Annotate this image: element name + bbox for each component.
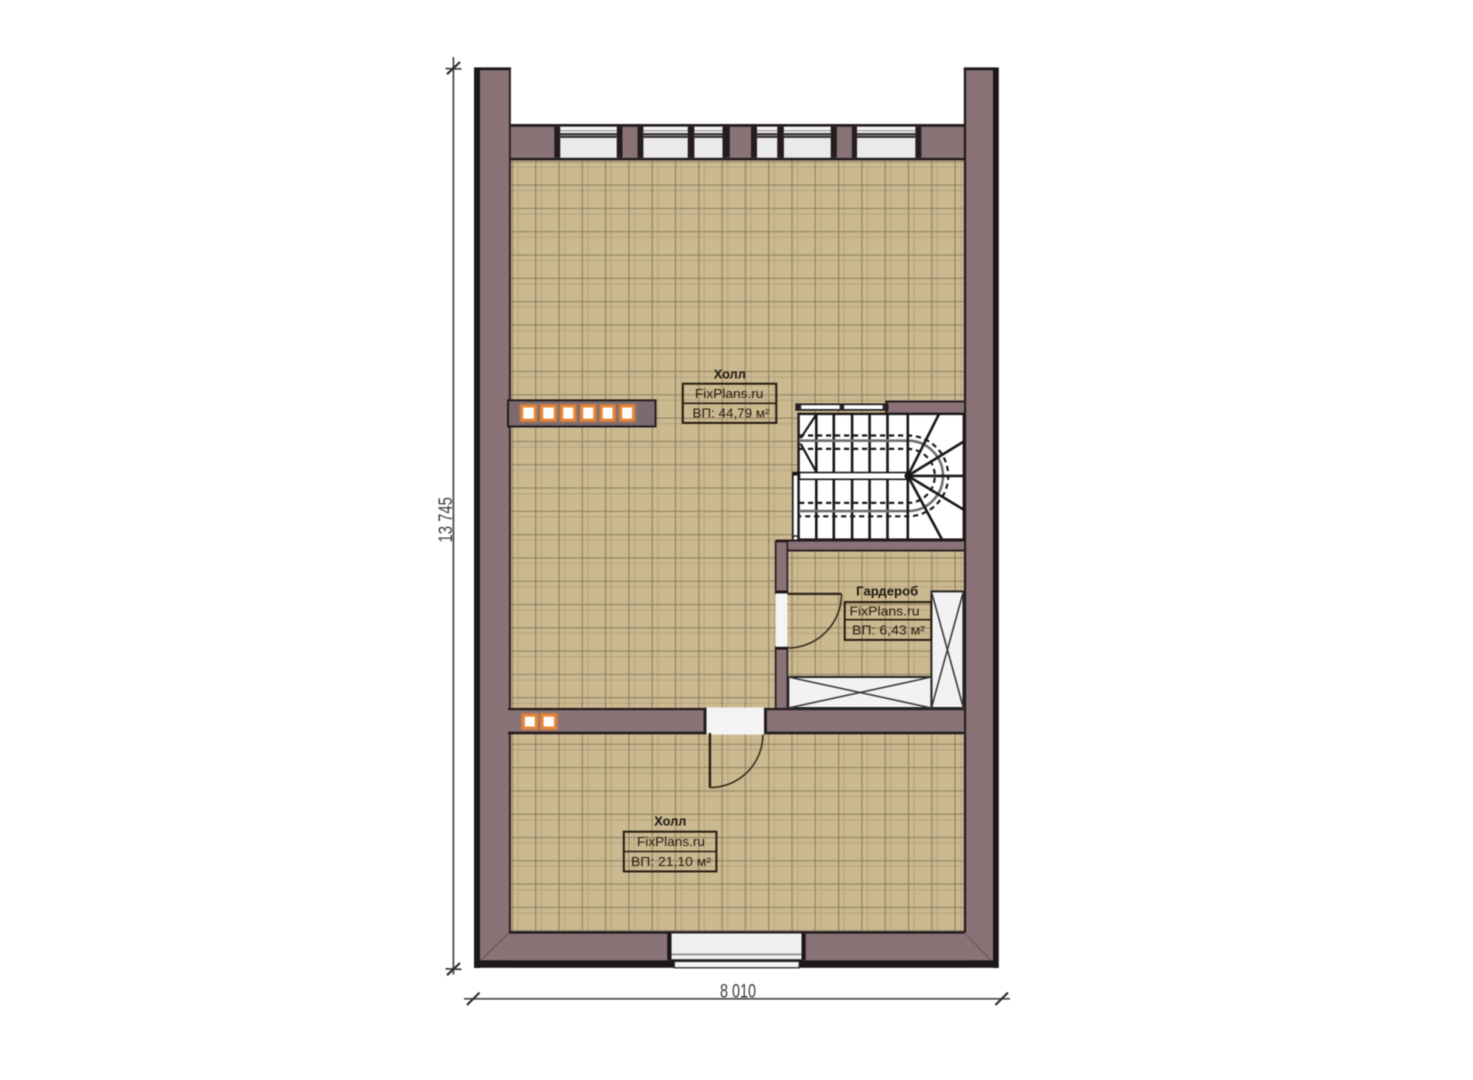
svg-text:ВП: 6,43 м²: ВП: 6,43 м² [852,623,926,638]
svg-text:ВП: 44,79 м²: ВП: 44,79 м² [693,405,771,420]
svg-text:FixPlans.ru: FixPlans.ru [850,604,920,619]
svg-text:FixPlans.ru: FixPlans.ru [695,386,764,401]
svg-text:13 745: 13 745 [436,497,457,543]
svg-text:Холл: Холл [714,367,746,382]
svg-text:FixPlans.ru: FixPlans.ru [637,834,705,849]
svg-text:Холл: Холл [654,813,686,828]
svg-text:Гардероб: Гардероб [856,585,918,599]
svg-text:8 010: 8 010 [720,982,756,1003]
svg-text:ВП: 21,10 м²: ВП: 21,10 м² [631,854,712,869]
